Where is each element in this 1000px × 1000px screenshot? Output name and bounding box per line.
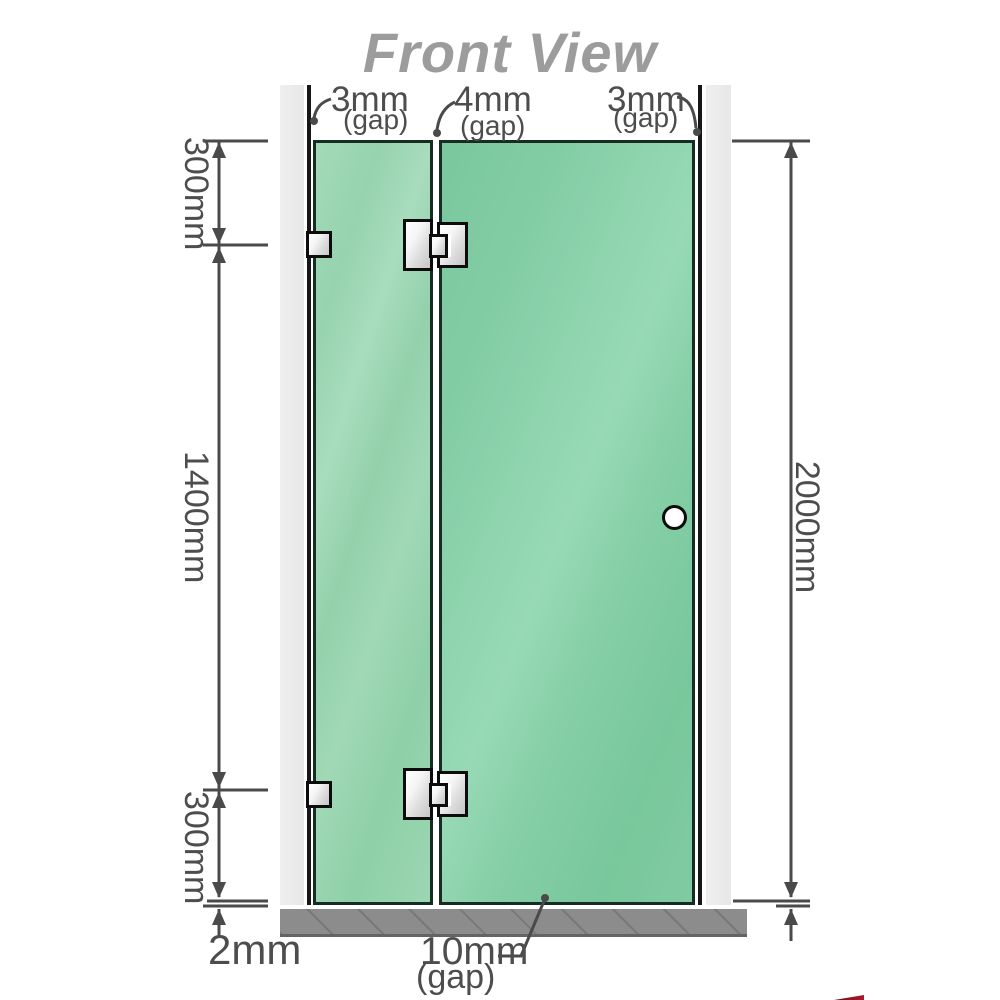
dim-label-right-height: 2000mm	[790, 457, 824, 597]
dim-label-left-middle: 1400mm	[179, 451, 213, 581]
dim-label-left-bottom: 300mm	[179, 791, 213, 901]
gap-note-top-left: (gap)	[343, 106, 408, 134]
dimension-lines	[0, 0, 1000, 1000]
gap-note-top-middle: (gap)	[460, 112, 525, 140]
dim-note-door-gap: (gap)	[416, 960, 495, 994]
dim-label-left-top: 300mm	[179, 137, 213, 247]
gap-note-top-right: (gap)	[613, 104, 678, 132]
front-view-diagram: Front View	[0, 0, 1000, 1000]
dim-label-floor-gap: 2mm	[208, 929, 301, 971]
